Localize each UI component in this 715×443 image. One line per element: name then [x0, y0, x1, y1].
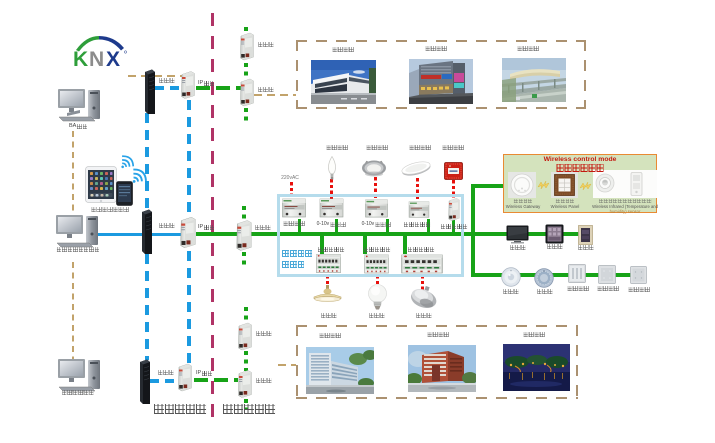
svg-text:N: N	[89, 48, 104, 69]
svg-text:K: K	[73, 48, 88, 69]
svg-text:X: X	[106, 48, 120, 69]
